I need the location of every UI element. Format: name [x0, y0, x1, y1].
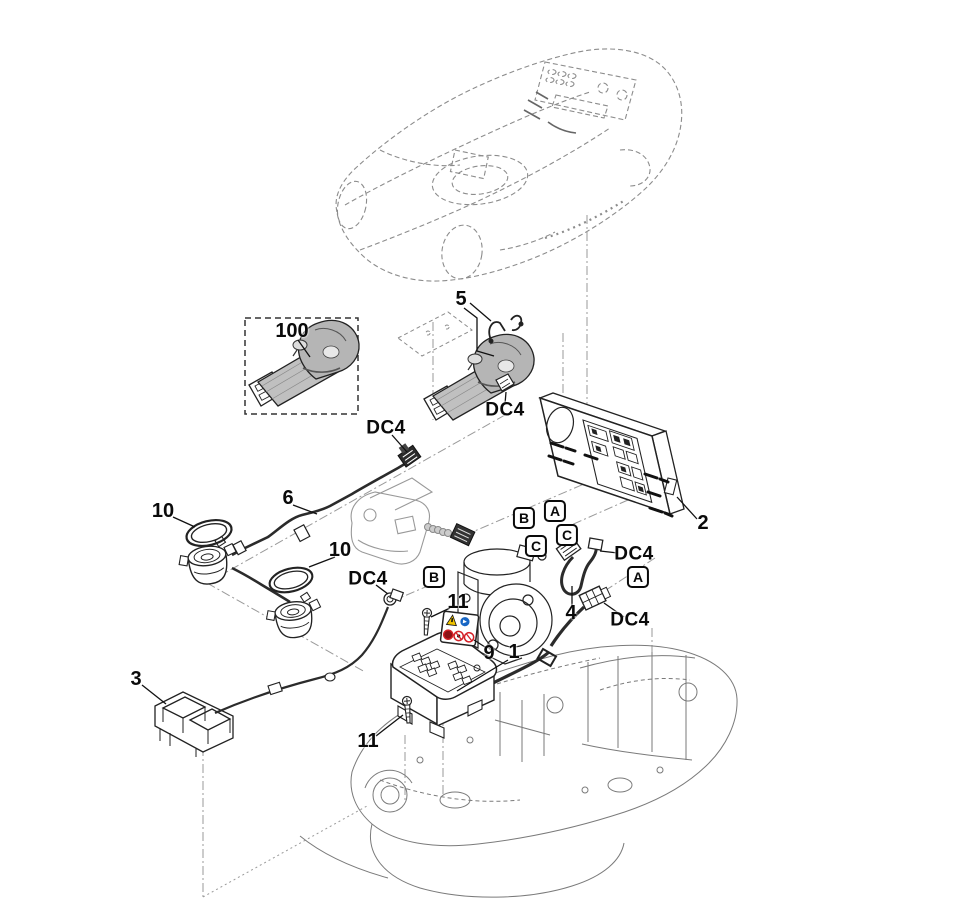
callout-11-bottom[interactable]: 11 — [357, 731, 378, 751]
callout-10-mid[interactable]: 10 — [329, 540, 351, 560]
cover-plate-ghost — [398, 312, 472, 356]
callout-3[interactable]: 3 — [130, 669, 141, 689]
callout-2[interactable]: 2 — [697, 513, 708, 533]
screw-top — [421, 608, 431, 635]
port-marker-a-top: A — [544, 500, 566, 522]
port-marker-b-mid: B — [423, 566, 445, 588]
port-marker-a-right: A — [627, 566, 649, 588]
callout-6[interactable]: 6 — [282, 488, 293, 508]
drive-motor-ghost — [351, 478, 432, 564]
mower-dotted-band — [545, 200, 625, 238]
callout-1[interactable]: 1 — [508, 642, 519, 662]
ring-sensor-mid — [264, 591, 325, 641]
sensor-dc4-connector — [384, 589, 403, 605]
projection-dotted-line — [203, 806, 367, 897]
port-marker-c-left: C — [525, 535, 547, 557]
o-ring-left — [184, 516, 234, 550]
dc4-label-cable4-top: DC4 — [614, 545, 654, 564]
dc4-label-cable4-bottom: DC4 — [610, 611, 650, 630]
port-marker-c-right: C — [556, 524, 578, 546]
connector-holder-3 — [155, 692, 233, 757]
mower-body-ghost — [333, 49, 681, 282]
safety-sticker-9 — [440, 611, 479, 646]
dc4-label-sensor: DC4 — [348, 570, 388, 589]
sensor-cable-6 — [232, 440, 421, 602]
circuit-board-2 — [540, 393, 684, 516]
port-marker-b-top: B — [513, 507, 535, 529]
callout-4[interactable]: 4 — [565, 603, 576, 623]
mower-charge-contacts-ghost — [524, 92, 576, 133]
ring-sensor-left — [176, 535, 240, 588]
callout-100[interactable]: 100 — [275, 321, 308, 341]
parts-diagram-page: 100 5 2 6 10 10 3 11 11 9 1 4 DC4 DC4 DC… — [0, 0, 979, 916]
drive-motor-braided-cable — [425, 524, 475, 546]
callout-10-left[interactable]: 10 — [152, 501, 174, 521]
exploded-parts-drawing — [0, 0, 979, 916]
callout-5[interactable]: 5 — [455, 289, 466, 309]
callout-11-top[interactable]: 11 — [447, 592, 468, 612]
dc4-label-part5: DC4 — [485, 401, 525, 420]
dc4-label-cable6: DC4 — [366, 419, 406, 438]
chassis-ghost — [300, 645, 737, 897]
callout-9[interactable]: 9 — [483, 643, 494, 663]
